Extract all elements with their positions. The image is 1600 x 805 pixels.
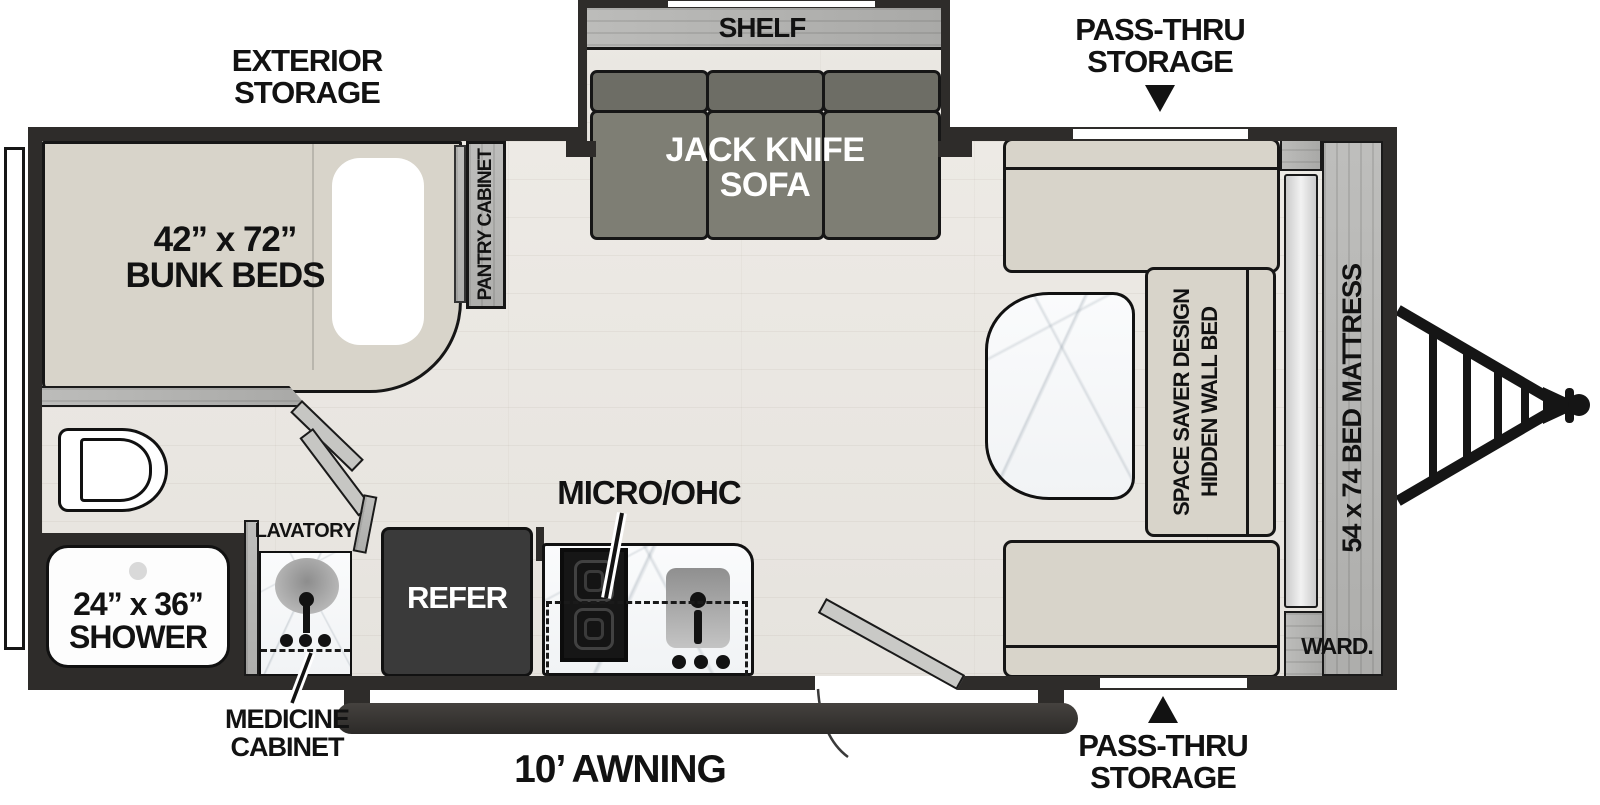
medicine-cabinet-label: MEDICINE CABINET xyxy=(197,705,377,761)
awning-bar xyxy=(336,703,1078,734)
lavatory-label: LAVATORY xyxy=(250,521,360,542)
pointer-overlay xyxy=(0,0,1600,805)
ward-label: WARD. xyxy=(1294,635,1380,659)
awning-label: 10’ AWNING xyxy=(480,750,760,791)
shelf-label: SHELF xyxy=(662,13,862,42)
exterior-storage-label: EXTERIOR STORAGE xyxy=(207,45,407,109)
medicine-pointer xyxy=(292,653,311,703)
pass-thru-top-label: PASS-THRU STORAGE xyxy=(1060,14,1260,78)
pass-thru-bottom-label: PASS-THRU STORAGE xyxy=(1063,730,1263,794)
floorplan-canvas: SHELF JACK KNIFE SOFA 42” x 72” xyxy=(0,0,1600,805)
micro-ohc-label: MICRO/OHC xyxy=(549,476,749,510)
micro-pointer xyxy=(606,513,622,598)
